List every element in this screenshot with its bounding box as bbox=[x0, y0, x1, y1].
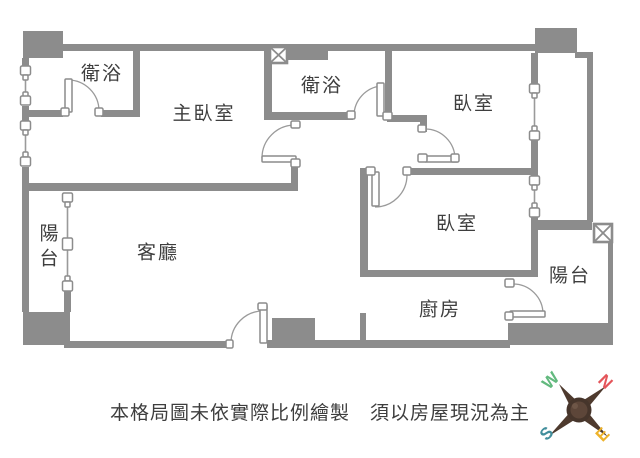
shaft-box-icon bbox=[270, 47, 287, 63]
door-master-bedroom bbox=[262, 121, 300, 167]
door-bedroom-middle-right bbox=[366, 167, 411, 207]
room-label-bathroom-top-left: 衛浴 bbox=[81, 59, 123, 86]
window bbox=[20, 66, 31, 106]
window bbox=[529, 176, 540, 217]
window bbox=[529, 84, 540, 140]
room-label-master-bedroom: 主臥室 bbox=[172, 99, 235, 126]
door-bedroom-top-right bbox=[418, 125, 459, 162]
door-bathroom-middle bbox=[347, 83, 392, 120]
room-label-bedroom-middle-right: 臥室 bbox=[436, 209, 478, 236]
room-label-balcony-right: 陽台 bbox=[549, 261, 591, 288]
room-label-kitchen: 廚房 bbox=[419, 295, 461, 322]
door-entry bbox=[226, 303, 267, 348]
room-label-balcony-left: 陽台 bbox=[34, 223, 61, 273]
room-label-living-room: 客廳 bbox=[137, 238, 179, 265]
room-label-bedroom-top-right: 臥室 bbox=[453, 89, 495, 116]
door-balcony-right bbox=[505, 279, 545, 320]
window-balcony-divider bbox=[63, 193, 73, 291]
floor-plan: 衛浴 主臥室 衛浴 臥室 臥室 陽台 客廳 廚房 陽台 W N S E 本格局圖… bbox=[0, 0, 640, 458]
shaft-box-icon bbox=[594, 224, 612, 242]
room-label-bathroom-middle: 衛浴 bbox=[301, 71, 343, 98]
disclaimer-text: 本格局圖未依實際比例繪製 須以房屋現況為主 bbox=[110, 398, 530, 425]
window bbox=[20, 121, 31, 167]
